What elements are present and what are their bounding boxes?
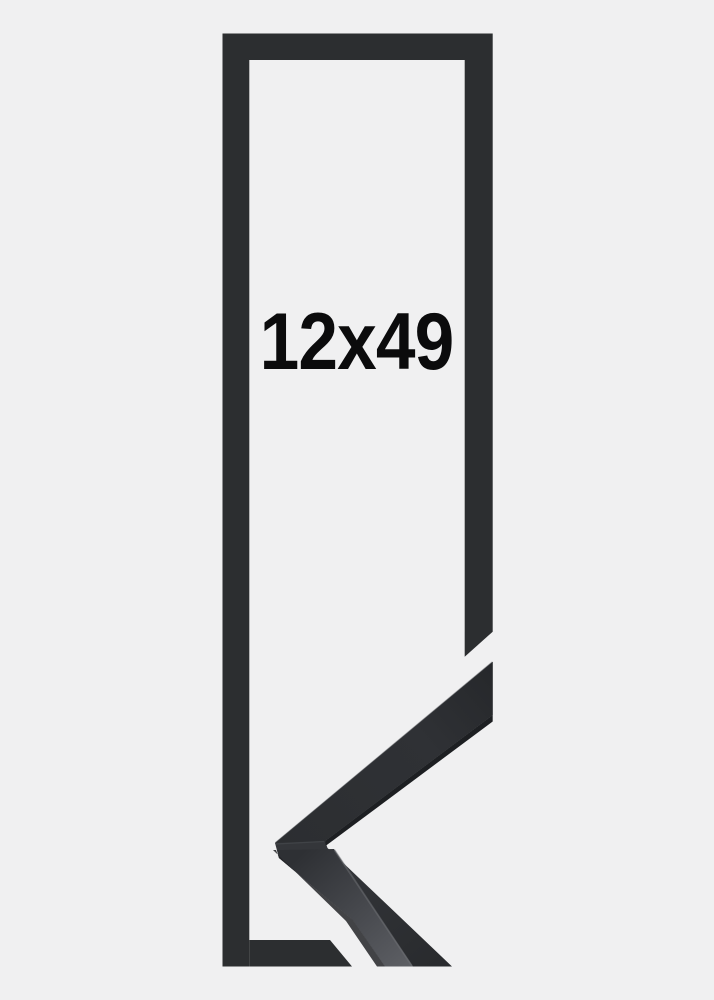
background xyxy=(0,0,714,1000)
frame-right-bar xyxy=(465,60,493,657)
frame-size-label-group: 12x49 xyxy=(260,297,454,387)
frame-graphic: 12x49 xyxy=(0,0,714,1000)
frame-size-label: 12x49 xyxy=(260,297,454,387)
product-image: 12x49 xyxy=(0,0,714,1000)
frame-left-bar xyxy=(223,34,250,967)
frame-top-bar xyxy=(223,34,493,61)
